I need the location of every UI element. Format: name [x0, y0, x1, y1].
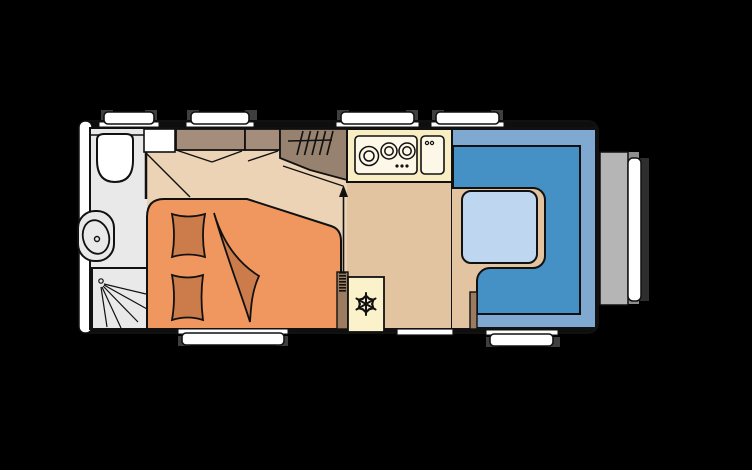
fridge-area	[337, 272, 384, 332]
kitchen	[347, 129, 452, 182]
pillow-icon-1	[172, 214, 205, 257]
side-panel	[337, 272, 348, 329]
overhead-cabinet-1	[176, 129, 245, 150]
window-top-3	[336, 110, 419, 127]
lounge-table	[462, 191, 537, 263]
lounge	[452, 129, 596, 329]
bench-side-panel	[470, 292, 477, 329]
toilet-icon	[97, 134, 133, 182]
hob-knobs-icon	[395, 164, 408, 167]
front-exterior	[600, 152, 649, 305]
pillow-icon-2	[172, 275, 203, 320]
window-top-1	[99, 110, 159, 127]
window-bottom-1	[178, 329, 288, 346]
caravan-floorplan-canvas	[0, 0, 752, 470]
shower-tray	[92, 268, 148, 329]
entry-door	[397, 329, 453, 335]
window-top-2	[186, 110, 257, 127]
caravan-floorplan	[0, 0, 752, 470]
front-storage-box	[600, 152, 628, 305]
overhead-cabinet-2	[245, 129, 280, 150]
cabinet-white	[144, 129, 175, 152]
window-bottom-2	[486, 330, 560, 347]
window-top-4	[431, 110, 504, 127]
cover-panel	[628, 158, 641, 301]
